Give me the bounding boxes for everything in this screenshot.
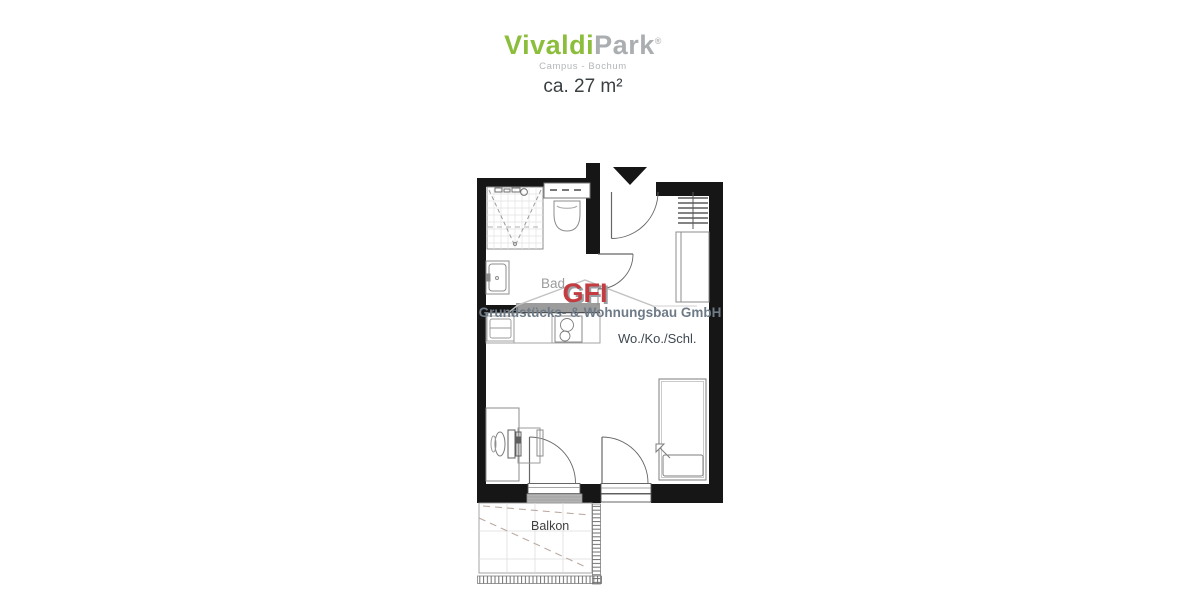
wardrobe [676, 232, 709, 302]
balcony-railing-bottom [478, 576, 602, 584]
desk-area [486, 408, 543, 481]
shower [487, 187, 543, 249]
label-living-room: Wo./Ko./Schl. [618, 331, 697, 346]
bed [656, 379, 706, 480]
balcony-door-right [601, 437, 651, 502]
floor-plan: GFI GFI Grundstücks- & Wohnungsbau GmbH … [0, 0, 1200, 600]
radiator [678, 192, 708, 229]
floorplan-page: VivaldiPark® Campus - Bochum ca. 27 m² [0, 0, 1200, 600]
watermark-logo: GFI [563, 278, 608, 308]
label-balcony: Balkon [531, 519, 569, 533]
balcony-railing-right [593, 504, 601, 584]
watermark-company: Grundstücks- & Wohnungsbau GmbH [479, 305, 722, 320]
entrance-door [612, 192, 659, 239]
balcony [478, 503, 602, 584]
toilet [554, 201, 580, 231]
entrance-arrow-icon [613, 167, 647, 185]
balcony-door-left [527, 437, 582, 503]
label-bathroom: Bad [541, 276, 565, 291]
washbasin [486, 261, 509, 294]
cistern-shelf [544, 183, 590, 198]
